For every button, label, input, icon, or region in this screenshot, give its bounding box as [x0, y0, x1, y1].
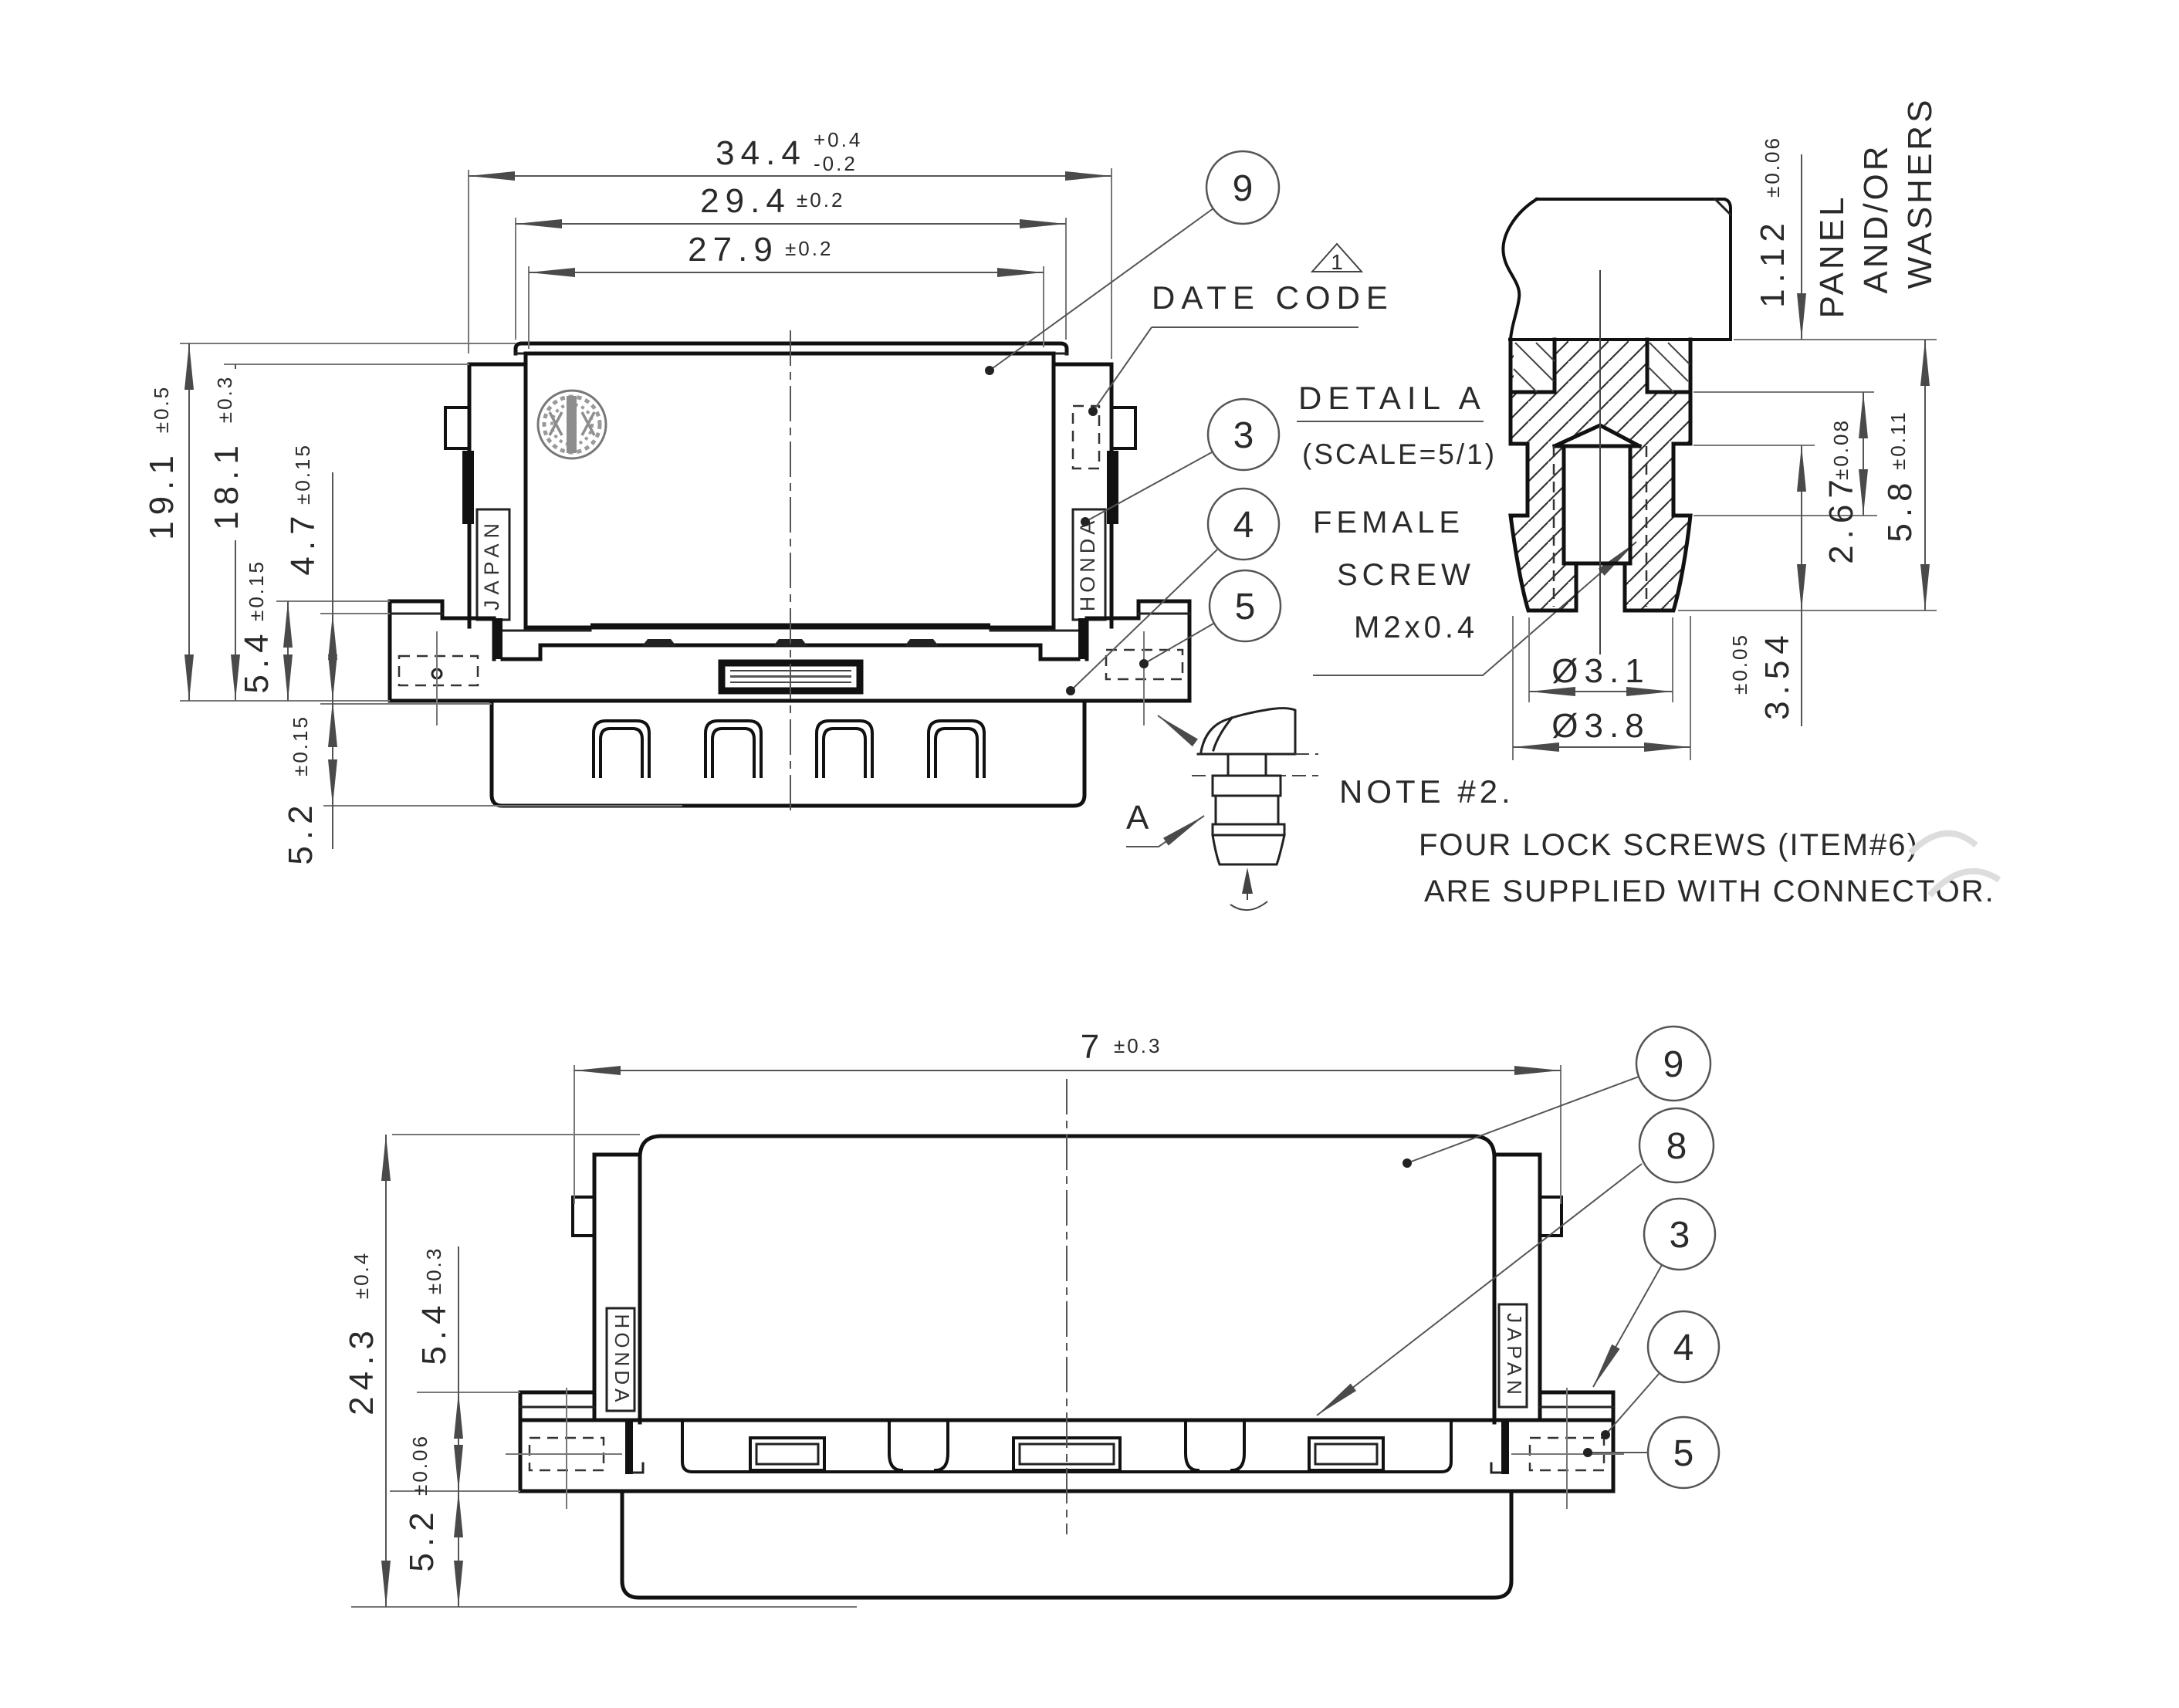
svg-text:5.2: 5.2: [282, 799, 320, 864]
svg-text:3: 3: [1233, 415, 1254, 456]
svg-text:±0.06: ±0.06: [1761, 136, 1784, 198]
svg-text:3: 3: [1670, 1215, 1690, 1256]
svg-text:27.9: 27.9: [688, 231, 779, 269]
svg-text:5: 5: [1673, 1433, 1694, 1474]
svg-text:HONDA: HONDA: [1076, 517, 1099, 612]
svg-text:19.1: 19.1: [143, 449, 181, 540]
svg-text:DETAIL A: DETAIL A: [1298, 380, 1487, 416]
svg-text:JAPAN: JAPAN: [1503, 1313, 1526, 1399]
svg-text:-0.2: -0.2: [814, 152, 858, 175]
svg-text:5.4: 5.4: [238, 627, 276, 693]
svg-text:ARE SUPPLIED WITH CONNECTOR.: ARE SUPPLIED WITH CONNECTOR.: [1424, 874, 1995, 908]
svg-text:±0.08: ±0.08: [1829, 418, 1852, 480]
svg-text:4: 4: [1233, 505, 1254, 546]
svg-text:M2x0.4: M2x0.4: [1354, 610, 1478, 644]
svg-text:Ø3.1: Ø3.1: [1551, 652, 1649, 690]
svg-text:24.3: 24.3: [343, 1324, 381, 1415]
svg-text:NOTE #2.: NOTE #2.: [1339, 773, 1514, 810]
svg-text:SCREW: SCREW: [1337, 558, 1475, 592]
svg-text:FEMALE: FEMALE: [1313, 506, 1464, 539]
svg-text:29.4: 29.4: [700, 182, 791, 220]
svg-text:2.67: 2.67: [1822, 473, 1860, 564]
svg-text:JAPAN: JAPAN: [480, 518, 503, 610]
svg-text:WASHERS: WASHERS: [1901, 97, 1939, 289]
svg-text:5: 5: [1235, 587, 1256, 627]
svg-text:4.7: 4.7: [284, 509, 322, 575]
svg-text:±0.15: ±0.15: [289, 715, 312, 776]
svg-text:7: 7: [1081, 1028, 1099, 1066]
svg-text:HONDA: HONDA: [611, 1314, 634, 1406]
svg-text:DATE CODE: DATE CODE: [1152, 279, 1394, 316]
svg-text:±0.2: ±0.2: [785, 237, 833, 260]
svg-text:A: A: [1126, 799, 1149, 837]
svg-text:9: 9: [1233, 168, 1254, 209]
svg-text:5.2: 5.2: [403, 1506, 441, 1571]
svg-text:±0.11: ±0.11: [1886, 410, 1910, 470]
svg-text:AND/OR: AND/OR: [1857, 143, 1895, 293]
svg-text:PANEL: PANEL: [1813, 194, 1851, 318]
svg-text:+0.4: +0.4: [814, 128, 862, 151]
svg-text:Ø3.8: Ø3.8: [1551, 707, 1649, 745]
svg-text:±0.15: ±0.15: [245, 560, 268, 621]
svg-text:±0.05: ±0.05: [1728, 633, 1751, 695]
svg-text:(SCALE=5/1): (SCALE=5/1): [1302, 438, 1497, 470]
svg-text:5.4: 5.4: [415, 1299, 453, 1365]
svg-text:4: 4: [1673, 1328, 1694, 1368]
svg-text:±0.3: ±0.3: [1114, 1034, 1162, 1057]
svg-text:±0.4: ±0.4: [350, 1251, 373, 1299]
svg-text:3.54: 3.54: [1758, 629, 1796, 720]
svg-text:±0.06: ±0.06: [408, 1434, 431, 1496]
svg-text:±0.3: ±0.3: [422, 1246, 445, 1294]
svg-text:FOUR LOCK SCREWS (ITEM#6): FOUR LOCK SCREWS (ITEM#6): [1419, 828, 1919, 862]
svg-text:±0.5: ±0.5: [150, 385, 173, 433]
svg-text:34.4: 34.4: [716, 134, 807, 172]
svg-text:1.12: 1.12: [1754, 217, 1792, 308]
svg-text:5.8: 5.8: [1881, 476, 1919, 542]
svg-text:±0.2: ±0.2: [797, 188, 844, 211]
svg-text:18.1: 18.1: [208, 439, 245, 530]
svg-text:9: 9: [1663, 1044, 1684, 1085]
svg-text:±0.3: ±0.3: [213, 375, 236, 423]
svg-text:1: 1: [1331, 250, 1343, 274]
svg-text:±0.15: ±0.15: [291, 443, 314, 505]
svg-text:8: 8: [1666, 1126, 1687, 1167]
